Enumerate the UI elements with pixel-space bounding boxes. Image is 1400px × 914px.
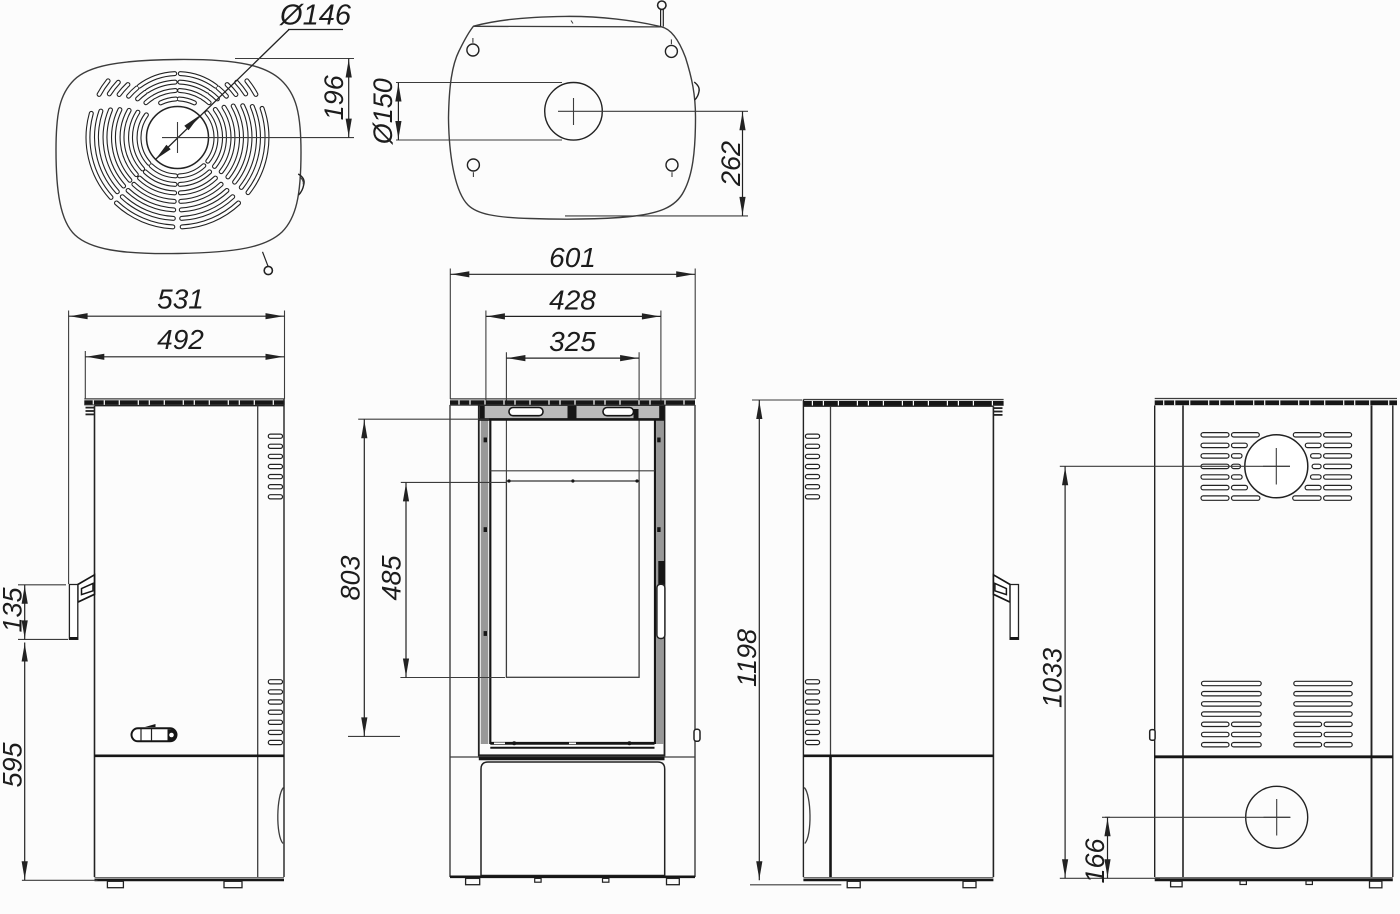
- svg-text:531: 531: [157, 284, 204, 315]
- svg-text:1033: 1033: [1038, 648, 1068, 708]
- svg-text:135: 135: [0, 586, 28, 632]
- svg-text:428: 428: [549, 285, 596, 316]
- svg-text:595: 595: [0, 741, 28, 787]
- svg-text:262: 262: [716, 141, 746, 187]
- svg-text:Ø146: Ø146: [279, 0, 352, 32]
- svg-text:196: 196: [319, 74, 349, 120]
- svg-text:492: 492: [157, 324, 204, 355]
- svg-text:601: 601: [549, 242, 596, 273]
- svg-text:485: 485: [377, 554, 407, 600]
- svg-text:166: 166: [1080, 837, 1110, 883]
- svg-text:1198: 1198: [732, 629, 762, 687]
- svg-text:803: 803: [336, 555, 366, 600]
- svg-text:Ø150: Ø150: [368, 78, 398, 145]
- svg-text:325: 325: [549, 326, 596, 357]
